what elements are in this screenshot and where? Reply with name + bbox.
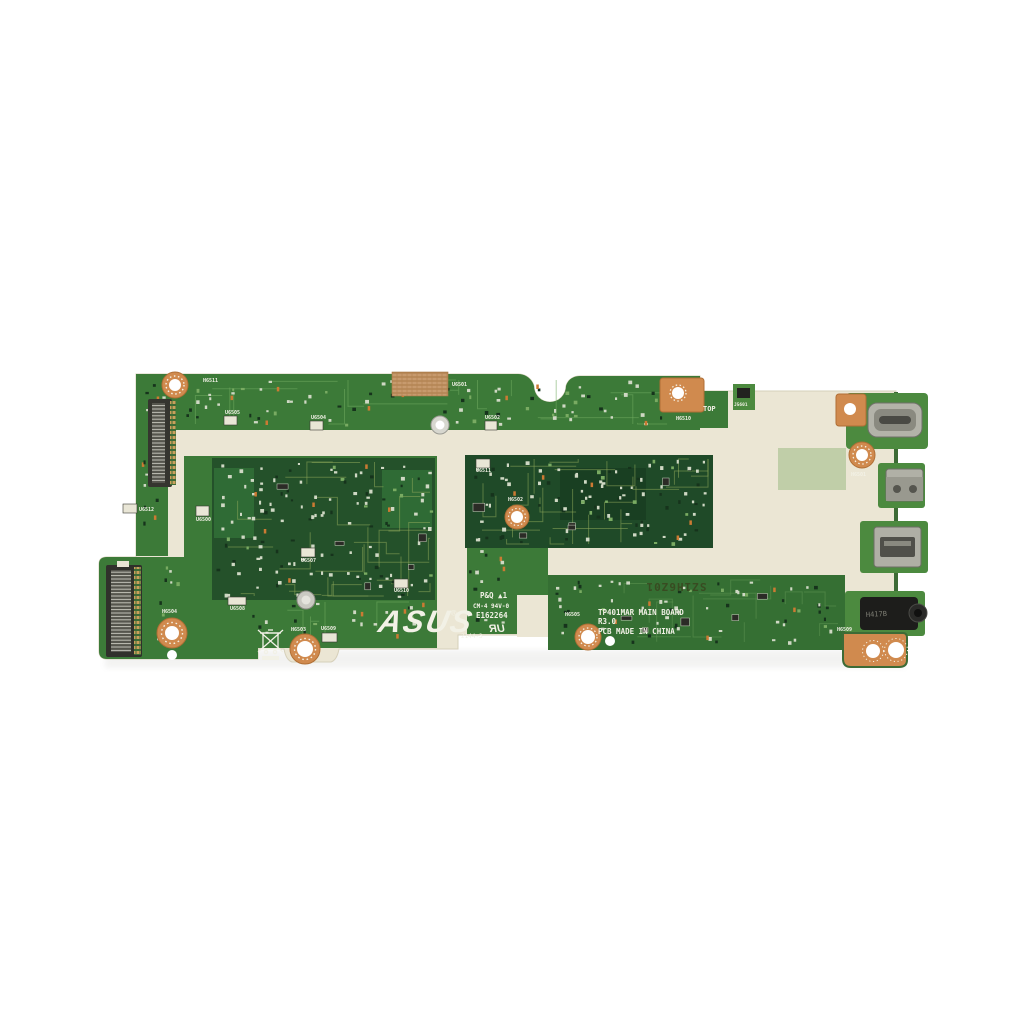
smd-component [717, 582, 719, 585]
smd-component [369, 546, 372, 548]
smd-component [217, 403, 220, 405]
smd-component [260, 388, 263, 391]
smd-component [476, 539, 479, 542]
smd-chip [732, 615, 739, 621]
board-origin: PCB MADE IN CHINA [598, 627, 675, 636]
smd-component [144, 484, 147, 487]
smd-component [145, 392, 148, 394]
smd-component [382, 498, 385, 500]
smd-component [619, 496, 621, 499]
smd-component [330, 511, 332, 515]
smd-component [735, 590, 738, 593]
smd-chip [519, 533, 526, 538]
smd-component [558, 497, 560, 499]
smd-component [426, 484, 430, 488]
smd-component [585, 497, 587, 500]
smd-component [360, 471, 363, 474]
smd-component [678, 500, 680, 504]
smd-component [329, 573, 333, 576]
board-model: TP401MAR MAIN BOARD [598, 608, 684, 617]
smd-component [334, 471, 337, 473]
smd-component [356, 576, 359, 578]
smd-component [601, 485, 604, 489]
smd-component [276, 550, 279, 554]
smd-component [469, 395, 471, 399]
smd-component [330, 469, 332, 471]
silkscreen-label: U6509 [321, 626, 336, 632]
smd-component [555, 499, 558, 502]
smd-component [401, 594, 405, 596]
smd-component [578, 581, 580, 585]
smd-component [818, 603, 820, 606]
smd-component [609, 518, 613, 521]
smd-component [599, 480, 602, 483]
smd-component [601, 476, 605, 480]
smd-component [579, 590, 582, 593]
smd-component [285, 494, 287, 497]
micro-usb-island [878, 463, 925, 508]
smd-component [374, 623, 378, 626]
smd-component [693, 513, 696, 516]
smd-component [556, 593, 559, 595]
smd-component [225, 544, 228, 548]
smd-component [653, 460, 656, 464]
smd-component [659, 600, 662, 604]
smd-component [227, 537, 230, 541]
connector-label-box [117, 561, 129, 567]
smd-component [461, 399, 464, 402]
smd-component [231, 392, 234, 394]
smd-component [242, 536, 245, 539]
ul-file-number: E162264 [476, 611, 508, 620]
smd-component [660, 466, 663, 470]
smd-component [677, 460, 679, 464]
smd-component [221, 528, 224, 531]
smd-component [554, 409, 556, 413]
smd-component [783, 623, 785, 626]
smd-component [424, 579, 428, 582]
smd-component [456, 421, 459, 424]
smd-component [619, 582, 621, 585]
smd-component [156, 499, 159, 502]
smd-component [660, 493, 662, 496]
smd-component [615, 397, 617, 400]
smd-component [280, 565, 283, 567]
smd-component [159, 601, 162, 605]
smd-component [209, 397, 211, 400]
smd-component [196, 416, 199, 418]
smd-component [721, 589, 724, 592]
smd-component [480, 580, 483, 583]
smd-component [772, 639, 775, 641]
smd-component [162, 396, 165, 398]
smd-component [520, 541, 523, 543]
smd-component [654, 542, 657, 544]
smd-component [232, 388, 234, 391]
smd-component [597, 516, 601, 519]
smd-component [308, 395, 311, 399]
smd-component [672, 542, 676, 546]
smd-component [370, 475, 374, 478]
smd-component [648, 601, 651, 606]
pq-mark: P&Q ▲1 [480, 591, 508, 600]
smd-component [313, 623, 317, 625]
smd-component [620, 487, 622, 490]
smd-component [499, 423, 502, 426]
smd-component [208, 394, 211, 396]
smd-component [579, 585, 582, 589]
smd-component [266, 421, 269, 426]
smd-component [495, 390, 498, 393]
smd-component [186, 414, 189, 417]
smd-component [289, 469, 292, 472]
smd-component [264, 529, 267, 534]
smd-component [256, 587, 259, 589]
smd-component [411, 584, 413, 586]
smd-component [298, 463, 300, 465]
smd-component [581, 490, 583, 493]
smd-component [311, 545, 314, 548]
smd-component [274, 412, 277, 416]
component-outline [310, 421, 323, 430]
smd-component [684, 492, 687, 495]
silkscreen-label: U6508 [230, 606, 245, 612]
smd-component [338, 406, 342, 408]
smd-component [562, 404, 565, 407]
smd-component [259, 545, 263, 548]
smd-component [584, 480, 587, 484]
smd-component [165, 578, 168, 582]
silkscreen-label: H6511 [203, 378, 218, 384]
smd-component [321, 554, 324, 557]
smd-component [247, 546, 249, 549]
smd-component [574, 415, 578, 417]
smd-component [574, 586, 577, 590]
component-outline [224, 416, 237, 425]
smd-component [166, 566, 168, 569]
smd-component [329, 419, 332, 422]
smd-component [228, 475, 232, 478]
smd-component [502, 528, 506, 532]
smd-component [814, 586, 818, 590]
smd-component [369, 490, 372, 494]
smd-component [500, 557, 503, 562]
crystal-oscillator [297, 591, 315, 609]
board-revision: R3.0 [598, 617, 617, 626]
smd-component [784, 620, 786, 623]
micro-hdmi-island [860, 521, 928, 573]
smd-component [232, 563, 235, 566]
silkscreen-label: U6502 [485, 415, 500, 421]
photo-canvas: H417B ASUS ® P&Q ▲1 CM-4 94V-0 E162264 U… [0, 0, 1024, 1024]
smd-component [819, 611, 821, 614]
smd-component [581, 500, 585, 503]
smd-component [655, 399, 658, 403]
component-outline [123, 504, 137, 513]
silkscreen-label: U6504 [311, 415, 326, 421]
smd-component [563, 507, 567, 510]
smd-component [640, 532, 643, 535]
silkscreen-label: H6505 [565, 612, 580, 618]
smd-component [530, 495, 534, 498]
smd-component [294, 619, 297, 622]
smd-component [321, 514, 324, 517]
smd-component [143, 522, 145, 526]
smd-component [366, 497, 370, 499]
smd-component [355, 473, 357, 477]
smd-component [790, 587, 792, 590]
smd-component [548, 464, 551, 467]
smd-component [260, 483, 263, 485]
silkscreen-label: H6510 [676, 416, 691, 422]
smd-component [292, 605, 296, 607]
smd-component [244, 485, 246, 489]
mounting-hole-h6502 [505, 505, 529, 529]
smd-component [401, 485, 403, 488]
smd-component [189, 408, 192, 411]
smd-component [258, 625, 261, 628]
smd-component [369, 578, 371, 580]
smd-component [692, 501, 694, 504]
smd-component [271, 508, 275, 511]
smd-component [559, 605, 562, 608]
smd-component [706, 607, 708, 609]
smd-component [360, 622, 362, 626]
smd-component [576, 473, 579, 477]
smd-component [361, 612, 364, 617]
smd-component [388, 507, 391, 512]
motherboard-photo: H417B ASUS ® P&Q ▲1 CM-4 94V-0 E162264 U… [0, 0, 1024, 1024]
svg-text:SZ1H6Z01: SZ1H6Z01 [646, 580, 707, 593]
smd-chip [408, 565, 414, 570]
smd-component [304, 400, 306, 403]
smd-component [325, 391, 327, 394]
silkscreen-label: H6509 [837, 627, 852, 633]
smd-component [364, 505, 368, 507]
smd-component [400, 494, 403, 498]
smd-component [660, 416, 662, 419]
smd-component [252, 517, 255, 521]
fiducial-hole [431, 416, 449, 434]
smd-component [558, 598, 561, 602]
smd-component [605, 501, 608, 503]
smd-component [153, 384, 156, 387]
smd-component [403, 466, 405, 468]
smd-component [505, 396, 508, 401]
smd-component [352, 408, 356, 411]
silkscreen-label: H6501 [851, 472, 866, 478]
smd-component [507, 418, 511, 420]
silkscreen-label: U6512 [139, 507, 154, 513]
smd-component [259, 501, 261, 505]
smd-component [645, 421, 648, 426]
smd-component [773, 588, 776, 593]
smd-component [826, 607, 829, 610]
date-code: 2144-3 [461, 633, 483, 640]
smd-component [314, 514, 316, 517]
micro-hdmi-port [874, 527, 921, 567]
smd-component [526, 407, 529, 410]
smd-component [742, 593, 745, 596]
component-outline [476, 459, 490, 468]
smd-component [829, 630, 832, 634]
micro-usb-port [886, 469, 923, 501]
smd-component [480, 550, 484, 553]
smd-component [401, 477, 405, 481]
smd-component [557, 469, 560, 472]
smd-component [626, 513, 630, 516]
smd-component [589, 496, 592, 499]
smd-component [333, 466, 336, 469]
smd-component [564, 624, 568, 628]
smd-component [486, 504, 488, 506]
smd-chip [277, 484, 288, 489]
smd-component [788, 641, 792, 645]
smd-component [547, 481, 551, 485]
smd-component [314, 496, 317, 500]
smd-component [709, 637, 712, 641]
silkscreen-label: U6501 [452, 382, 467, 388]
silkscreen-label: U6500 [196, 517, 211, 523]
smd-component [688, 467, 692, 471]
smd-component [665, 506, 668, 510]
edge-connector-bottom [106, 561, 142, 657]
smd-component [715, 641, 718, 644]
smd-component [689, 520, 692, 525]
smd-component [706, 636, 709, 641]
smd-chip [419, 534, 427, 542]
smd-component [685, 513, 688, 516]
audio-jack-marking: H417B [866, 610, 887, 619]
smd-component [393, 489, 397, 492]
smd-component [217, 569, 221, 572]
smd-component [248, 517, 251, 519]
smd-component [366, 492, 369, 496]
smd-component [311, 515, 313, 519]
smd-component [241, 388, 245, 390]
smd-component [459, 408, 463, 412]
smd-component [565, 538, 568, 541]
smd-component [264, 511, 268, 515]
smd-component [604, 410, 607, 413]
smd-component [552, 414, 554, 417]
smd-component [414, 513, 418, 516]
smd-component [489, 504, 491, 508]
silkscreen-label: H6502 [508, 497, 523, 503]
smd-component [353, 610, 356, 614]
smd-component [586, 538, 590, 542]
smd-component [290, 401, 293, 403]
smd-component [507, 463, 509, 467]
mounting-hole-h6511 [162, 372, 188, 398]
smd-component [169, 570, 172, 573]
smd-component [561, 632, 564, 635]
smd-component [574, 401, 578, 405]
flammability-mark: CM-4 94V-0 [473, 603, 510, 610]
bottom-right-copper-pad [843, 633, 908, 667]
smd-component [503, 567, 506, 572]
smd-component [491, 468, 494, 471]
smd-component [566, 392, 570, 396]
audio-jack-island: H417B [845, 591, 927, 636]
smd-component [677, 536, 680, 541]
silkscreen-label: U6511 [476, 468, 491, 474]
smd-component [291, 499, 293, 501]
smd-component [352, 619, 355, 622]
smd-component [390, 574, 392, 577]
smd-component [539, 469, 542, 472]
smd-component [421, 499, 424, 503]
smd-component [648, 464, 651, 468]
smd-component [675, 624, 678, 628]
smd-component [380, 575, 383, 577]
registered-mark: ® [451, 609, 457, 619]
smd-component [590, 511, 593, 515]
smd-component [626, 581, 630, 584]
smd-chip [365, 583, 371, 590]
smd-component [611, 581, 614, 583]
pour-patch-2 [382, 470, 432, 528]
smd-component [365, 502, 368, 505]
smd-component [571, 411, 573, 413]
smd-component [259, 488, 263, 491]
smd-component [240, 513, 242, 516]
smd-component [281, 520, 284, 523]
silkscreen-label: TOP [703, 405, 716, 413]
smd-component [569, 418, 572, 421]
smd-component [144, 460, 146, 464]
smd-component [293, 562, 295, 566]
light-copper-patch [778, 448, 846, 490]
smd-component [793, 608, 796, 613]
smd-component [797, 609, 800, 612]
smd-component [480, 521, 484, 523]
usb-c-island [836, 393, 928, 449]
smd-component [231, 521, 234, 524]
smd-component [196, 400, 199, 404]
smd-component [824, 625, 827, 628]
smd-component [251, 479, 254, 482]
smd-component [357, 502, 359, 505]
smd-component [750, 582, 753, 584]
smd-component [642, 492, 645, 496]
smd-component [287, 400, 290, 403]
smd-component [221, 503, 225, 507]
smd-component [365, 400, 369, 404]
ul-mark: UR [489, 623, 505, 635]
smd-component [745, 593, 748, 597]
smd-component [696, 470, 699, 473]
smd-component [671, 466, 674, 469]
smd-component [633, 533, 637, 536]
smd-component [222, 496, 225, 499]
smd-component [259, 568, 262, 571]
smd-component [154, 515, 157, 520]
smd-component [350, 551, 352, 554]
smd-component [398, 596, 402, 598]
smd-component [375, 566, 379, 569]
pour-patch-1 [214, 468, 254, 538]
smd-component [421, 493, 424, 496]
smd-component [542, 475, 545, 480]
component-outline [196, 506, 209, 516]
smd-chip [681, 618, 690, 626]
silkscreen-label: U6507 [301, 558, 316, 564]
smd-component [276, 571, 279, 574]
smd-component [365, 464, 368, 469]
smd-chip [568, 525, 575, 530]
smd-component [364, 572, 367, 574]
